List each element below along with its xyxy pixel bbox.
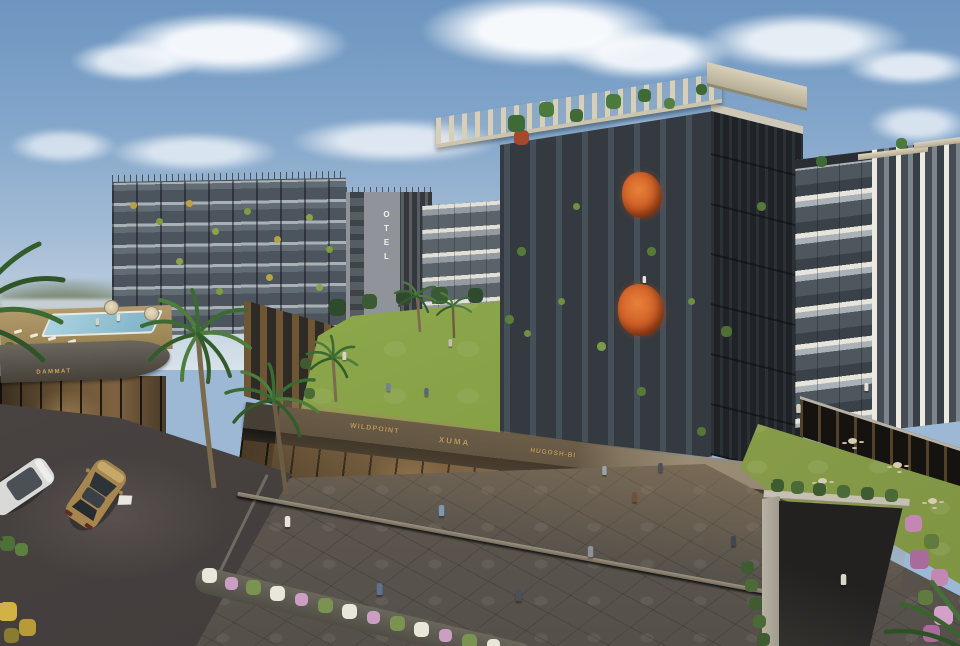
cafe-table — [818, 478, 827, 484]
cafe-table — [893, 462, 902, 468]
planter-flowers — [200, 568, 203, 571]
ramp-side-hedge — [744, 560, 747, 563]
corner-shrubs — [0, 538, 3, 541]
cloud — [110, 132, 280, 172]
pink-flower-bushes — [906, 514, 909, 517]
cafe-table — [928, 498, 937, 504]
ramp-hedge — [770, 480, 773, 483]
cafe-table — [848, 438, 857, 444]
palm-tree — [428, 282, 480, 340]
main-apartment-building-front — [500, 111, 712, 490]
palm-tree-large — [212, 362, 352, 497]
orange-balcony-tree — [618, 284, 664, 336]
facade-plants — [118, 190, 121, 193]
glass-reflections — [500, 111, 712, 490]
ramp-wall — [762, 496, 780, 646]
main-apartment-building-side — [711, 103, 803, 478]
corner-palm-fronds — [0, 238, 112, 368]
car-white — [0, 446, 56, 530]
architectural-rendering: OTEL — [0, 0, 960, 646]
podium-shop-sign: DAMMAT — [36, 368, 71, 375]
cloud — [70, 40, 200, 82]
courtyard-front-hedge — [0, 0, 3, 3]
orange-balcony-tree — [622, 172, 662, 218]
hotel-sign: OTEL — [382, 210, 391, 266]
yellow-flowers — [0, 600, 3, 603]
right-apartment-building-wing — [872, 139, 960, 432]
bottom-right-fronds — [856, 568, 960, 646]
cloud — [8, 128, 118, 164]
